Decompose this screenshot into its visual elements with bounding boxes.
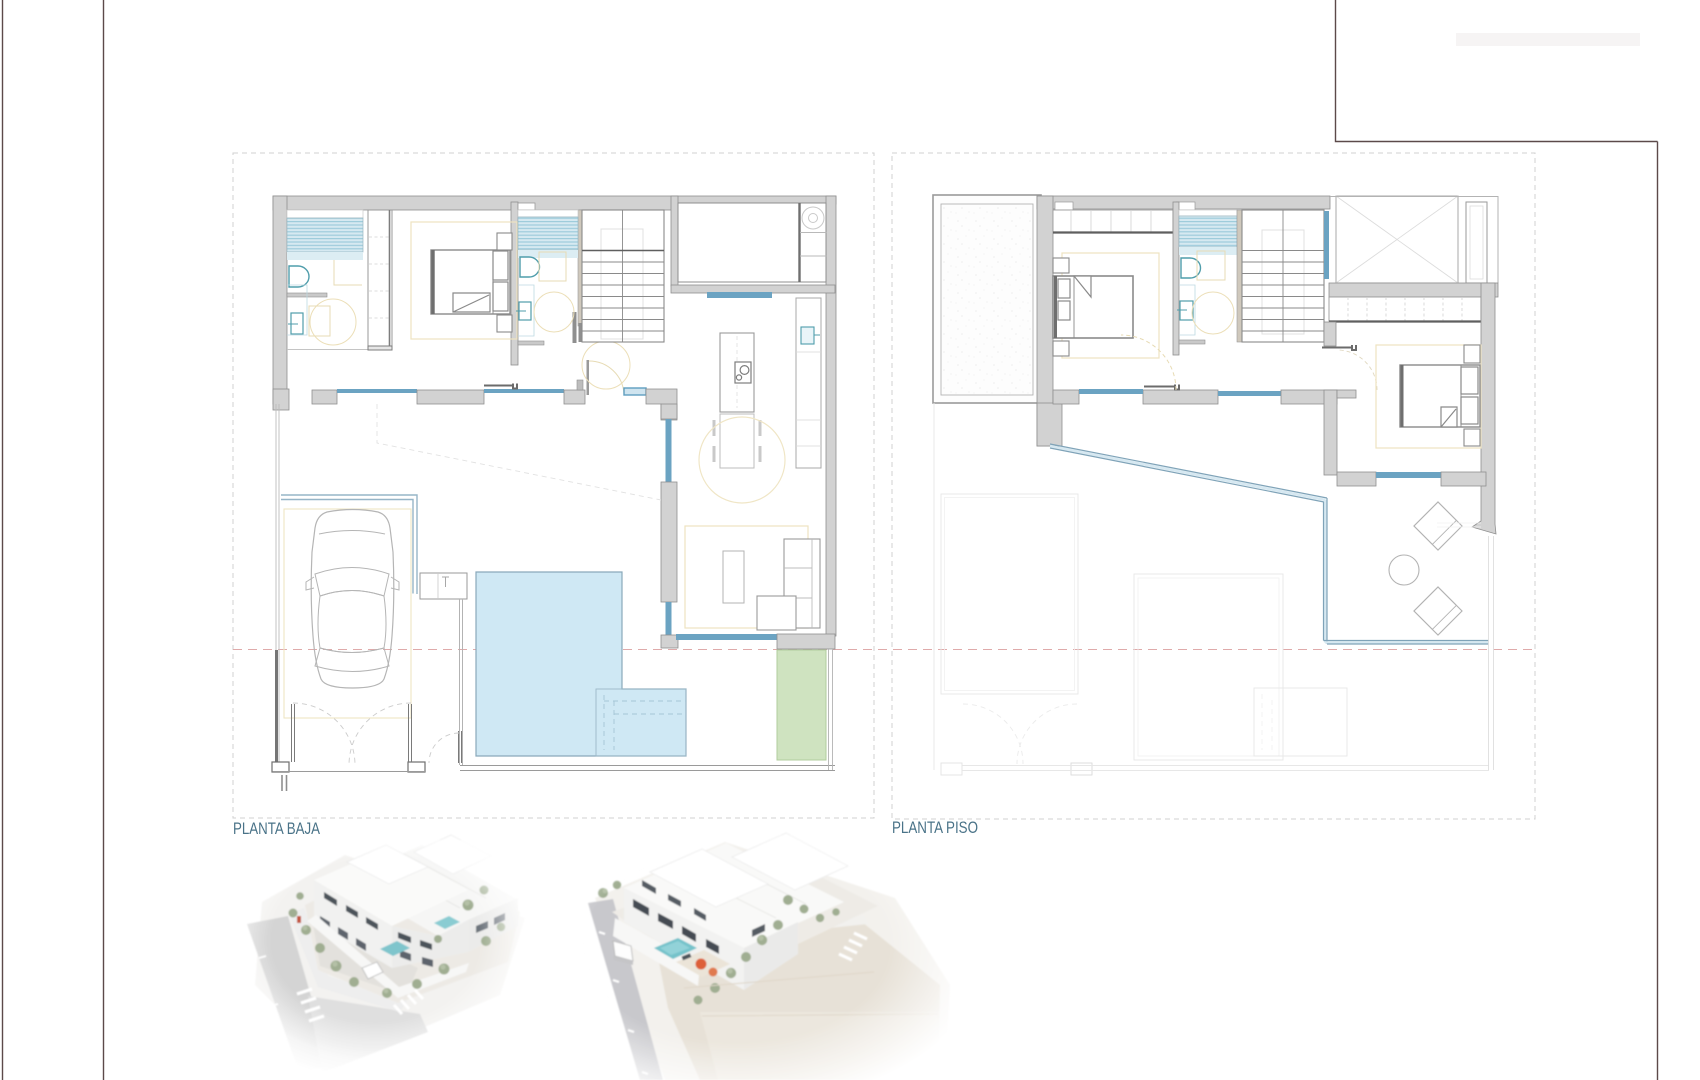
svg-text:PLANTA BAJA: PLANTA BAJA: [233, 819, 321, 838]
svg-text:PLANTA PISO: PLANTA PISO: [892, 818, 978, 837]
